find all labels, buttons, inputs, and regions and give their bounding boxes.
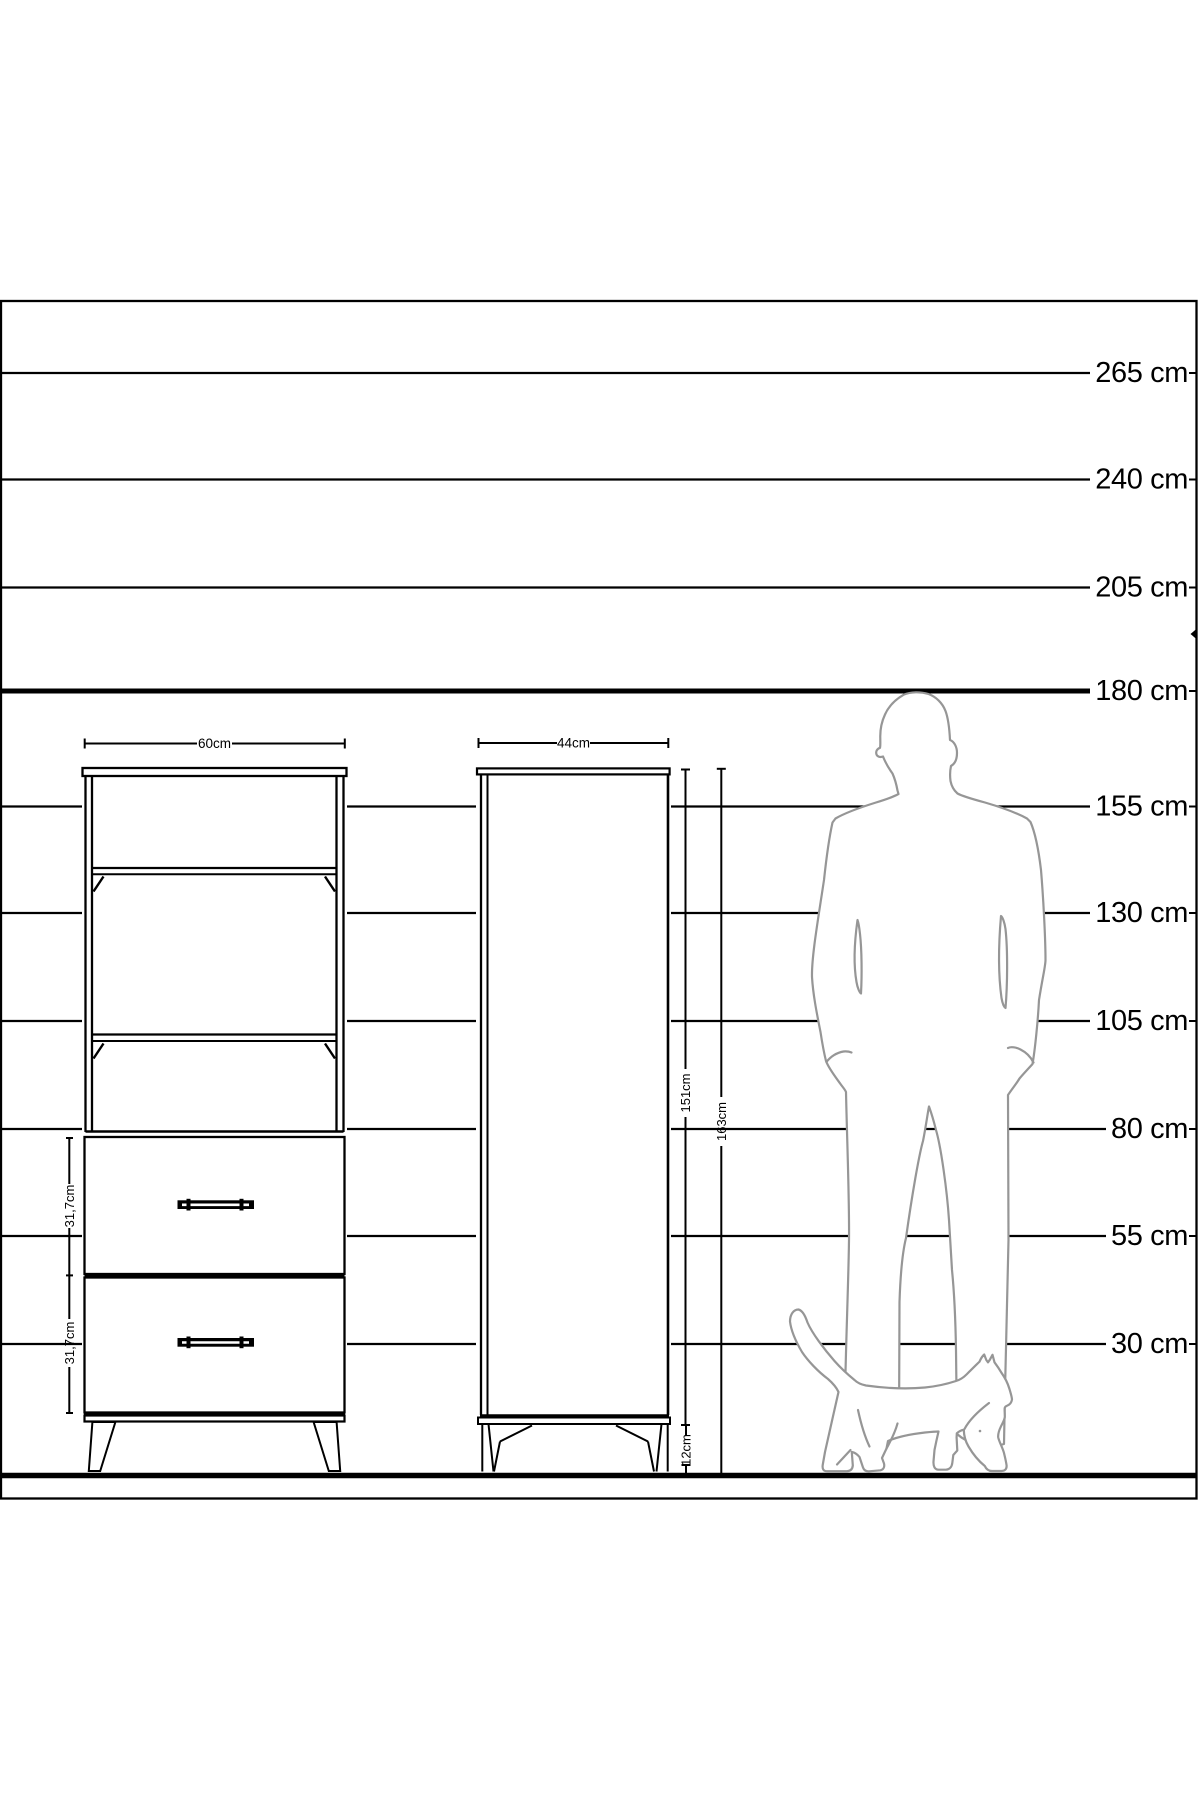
svg-text:151cm: 151cm [678, 1073, 693, 1112]
svg-text:44cm: 44cm [557, 736, 590, 751]
svg-text:55 cm: 55 cm [1111, 1220, 1188, 1252]
svg-text:31,7cm: 31,7cm [62, 1322, 77, 1365]
svg-text:80 cm: 80 cm [1111, 1113, 1188, 1145]
svg-text:265 cm: 265 cm [1095, 357, 1188, 389]
svg-text:130 cm: 130 cm [1095, 897, 1188, 929]
svg-text:205 cm: 205 cm [1095, 571, 1188, 603]
svg-text:240 cm: 240 cm [1095, 463, 1188, 495]
svg-text:60cm: 60cm [198, 736, 231, 751]
svg-text:163cm: 163cm [714, 1102, 729, 1141]
svg-text:105 cm: 105 cm [1095, 1005, 1188, 1037]
svg-text:180 cm: 180 cm [1095, 675, 1188, 707]
svg-text:155 cm: 155 cm [1095, 790, 1188, 822]
svg-text:12cm: 12cm [679, 1434, 694, 1466]
svg-text:30 cm: 30 cm [1111, 1328, 1188, 1360]
svg-text:31,7cm: 31,7cm [62, 1185, 77, 1228]
